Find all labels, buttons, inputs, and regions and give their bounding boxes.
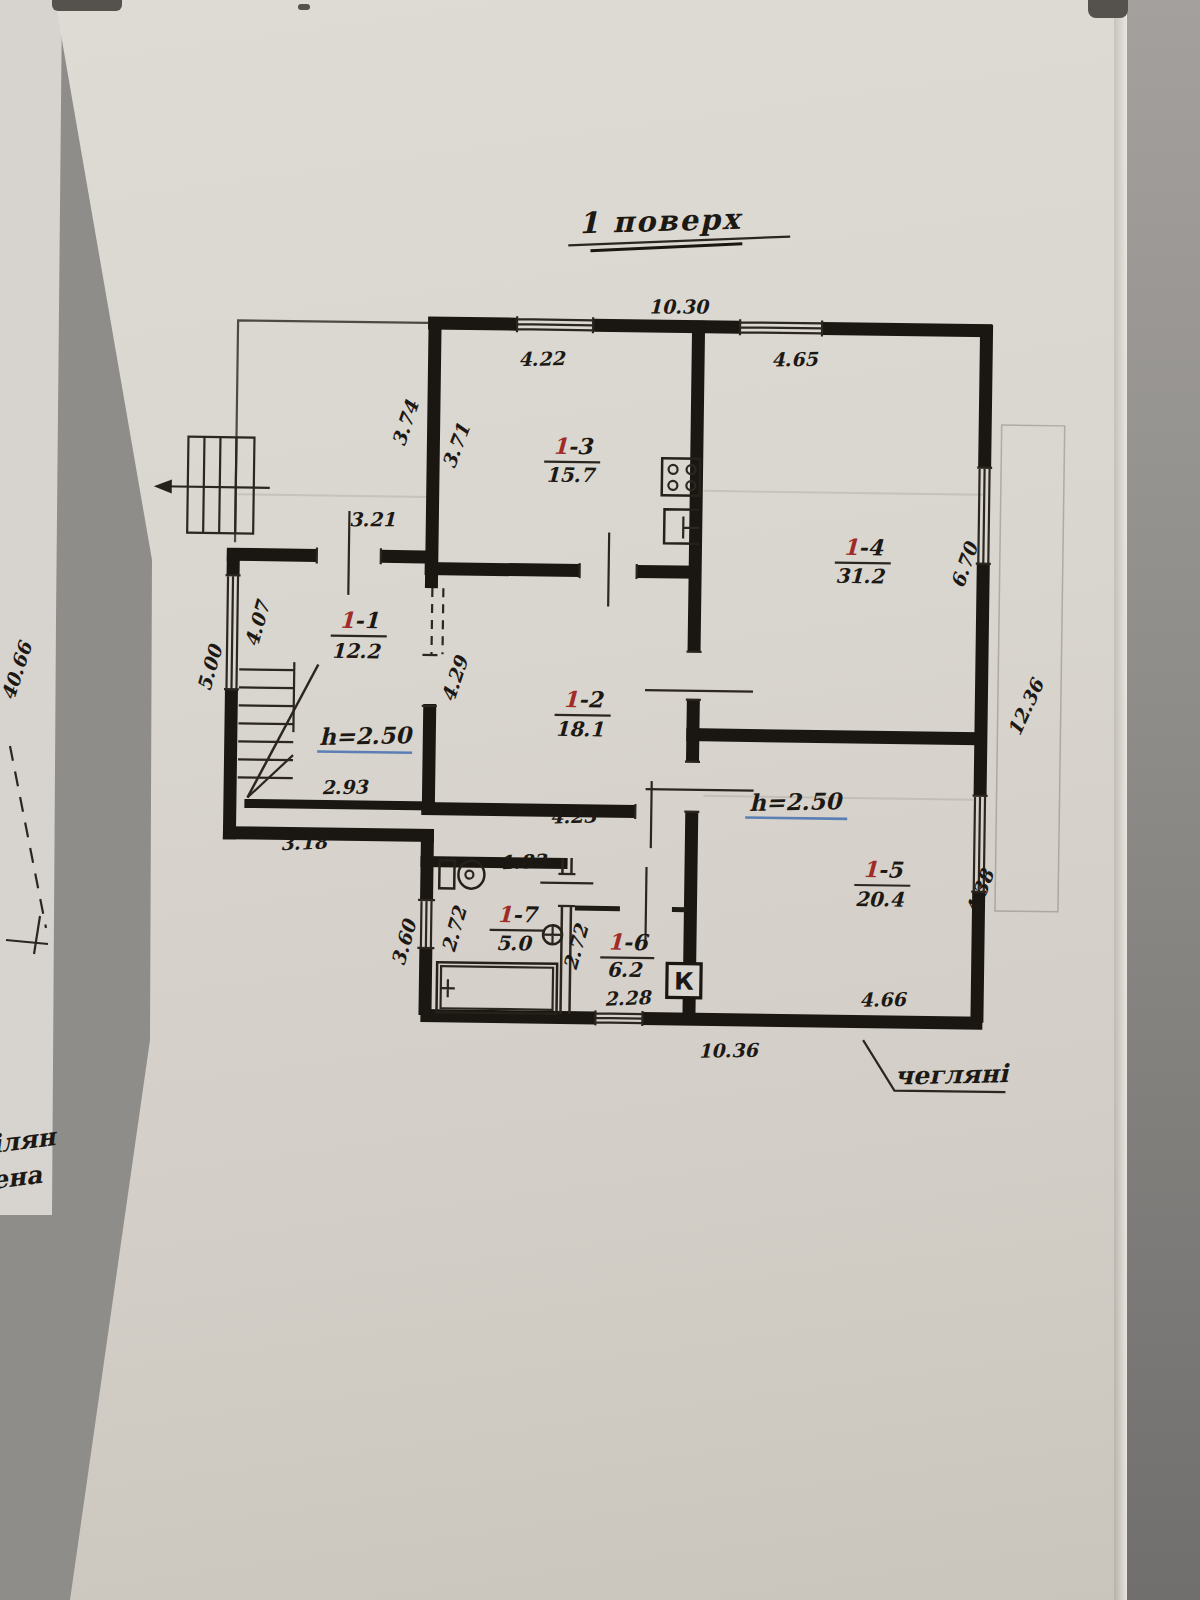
dim-veranda-side: 3.74 — [387, 397, 423, 449]
dim-kitchen-left: 3.71 — [437, 420, 474, 471]
window-room4-top — [740, 319, 822, 336]
floor-plan-drawing: 1 поверх 40.66 ілян ена — [0, 0, 1200, 1600]
room2-bottom-wall — [421, 808, 635, 811]
room-1-7-label: 1-7 — [497, 901, 540, 928]
room-1-2-label: 1-2 — [563, 686, 605, 713]
door-corridor — [635, 781, 652, 848]
porch-steps — [153, 436, 270, 534]
room-1-6-label: 1-6 — [607, 929, 650, 956]
toilet-drain-icon — [465, 871, 473, 879]
window-kitchen-top — [517, 316, 593, 333]
stove-burner-icon — [668, 481, 677, 490]
height-note-left-underline — [317, 751, 412, 752]
dashed-opening-room1-room2 — [431, 588, 443, 654]
room-1-5-area: 20.4 — [855, 887, 905, 912]
room-1-1-area: 12.2 — [331, 639, 382, 664]
dim-room5-width: 4.66 — [859, 988, 908, 1011]
dim-left-side: 5.00 — [193, 641, 227, 693]
stair-edge — [293, 662, 294, 732]
room-1-2-underline — [555, 715, 611, 716]
bathtub-drain-icon — [441, 979, 455, 997]
dim-left-bottom: 3.18 — [280, 830, 329, 854]
dim-room4-width: 4.65 — [771, 348, 820, 371]
room-1-6-area: 6.2 — [607, 958, 644, 983]
stair-outer-bottom-wall — [223, 833, 434, 836]
room1-top-wall — [227, 554, 438, 557]
outer-walls — [220, 314, 992, 1023]
room-1-3-area: 15.7 — [545, 463, 596, 488]
room-1-2-area: 18.1 — [555, 717, 604, 742]
room4-room5-wall — [686, 735, 980, 739]
room-1-1-underline — [331, 636, 387, 637]
staircase — [237, 661, 318, 798]
windows — [219, 312, 994, 1031]
drawing-title: 1 поверх — [567, 201, 790, 252]
porch-arrow-line — [160, 486, 270, 488]
stove-burner-icon — [669, 465, 678, 474]
bottom-wall — [420, 1015, 982, 1023]
dim-right-overall: 12.36 — [1003, 674, 1049, 739]
edge-dashed-line — [10, 746, 46, 928]
door-kitchen — [579, 532, 637, 607]
room-1-4-label: 1-4 — [843, 534, 884, 561]
edge-tick-2 — [34, 916, 40, 954]
room-labels: 1-1 12.2 1-2 18.1 1-3 15.7 1-4 31.2 1-5 … — [326, 430, 917, 986]
porch-step-lines — [203, 437, 236, 533]
opening-stair-room2 — [422, 655, 438, 706]
stair-diagonal-2 — [247, 755, 293, 799]
dim-corridor-width: 1.83 — [500, 849, 549, 873]
title-underline-2 — [590, 244, 742, 251]
right-wall — [977, 325, 987, 1023]
faint-line — [704, 491, 983, 495]
dim-room2-left: 4.29 — [437, 652, 473, 705]
dim-room5-right: 4.38 — [961, 865, 999, 918]
height-note-right: h=2.50 — [749, 787, 845, 816]
height-note-right-underline — [745, 817, 847, 818]
dim-room2-width: 4.23 — [550, 805, 599, 828]
faint-line — [238, 494, 428, 497]
edge-dimension: 40.66 — [0, 638, 37, 703]
dim-top-overall: 10.30 — [648, 295, 709, 317]
edge-cut-word-1: ілян — [0, 1122, 60, 1159]
door-bathroom-tick — [540, 883, 593, 884]
door-room5 — [645, 761, 754, 813]
door-room4 — [645, 651, 754, 701]
edge-cut-word-2: ена — [0, 1160, 44, 1195]
room-1-1-label: 1-1 — [339, 607, 379, 634]
dim-bath-outer-left: 3.60 — [387, 916, 421, 968]
dim-kitchen-width: 4.22 — [518, 347, 567, 370]
room-1-4-area: 31.2 — [835, 564, 886, 589]
window-room1-left — [224, 575, 241, 689]
bathroom-door-jambs — [558, 874, 575, 906]
faint-pencil-rectangle — [995, 425, 1065, 912]
room-1-7-area: 5.0 — [496, 931, 533, 956]
room-1-5-label: 1-5 — [862, 856, 904, 883]
material-note-text: чегляні — [894, 1059, 1011, 1090]
edge-tick — [6, 940, 48, 944]
dim-room7-left: 2.72 — [437, 903, 471, 955]
room-1-5-underline — [854, 885, 910, 886]
floor-plan: К 1-1 12.2 1-2 18.1 1-3 15.7 1-4 31.2 1-… — [145, 288, 1066, 1093]
room-1-3-label: 1-3 — [552, 433, 594, 460]
height-note-left: h=2.50 — [319, 721, 415, 750]
stair-inner-bottom-wall — [244, 803, 434, 806]
dim-entry-width: 3.21 — [349, 508, 395, 530]
window-bottom — [595, 1010, 642, 1026]
material-note: чегляні — [862, 1040, 1011, 1092]
page-title: 1 поверх — [578, 202, 744, 240]
boiler-letter: К — [674, 967, 694, 995]
central-vertical-wall — [689, 321, 699, 1019]
dim-room1-left: 4.07 — [240, 596, 275, 649]
room6-top-wall — [575, 908, 687, 910]
dim-bottom-overall: 10.36 — [698, 1039, 760, 1062]
dim-stair-width: 2.93 — [321, 775, 370, 798]
dim-room6-left: 2.72 — [559, 920, 593, 972]
porch-arrow-head — [154, 479, 172, 493]
dim-room6-width: 2.28 — [604, 986, 653, 1010]
top-wall — [428, 323, 992, 331]
kitchen-bottom-wall — [425, 568, 701, 572]
photographed-floor-plan-page: 1 поверх 40.66 ілян ена — [0, 0, 1200, 1600]
bathtub-inner-icon — [441, 966, 554, 1010]
edge-annotations: 40.66 ілян ена — [0, 638, 60, 1195]
